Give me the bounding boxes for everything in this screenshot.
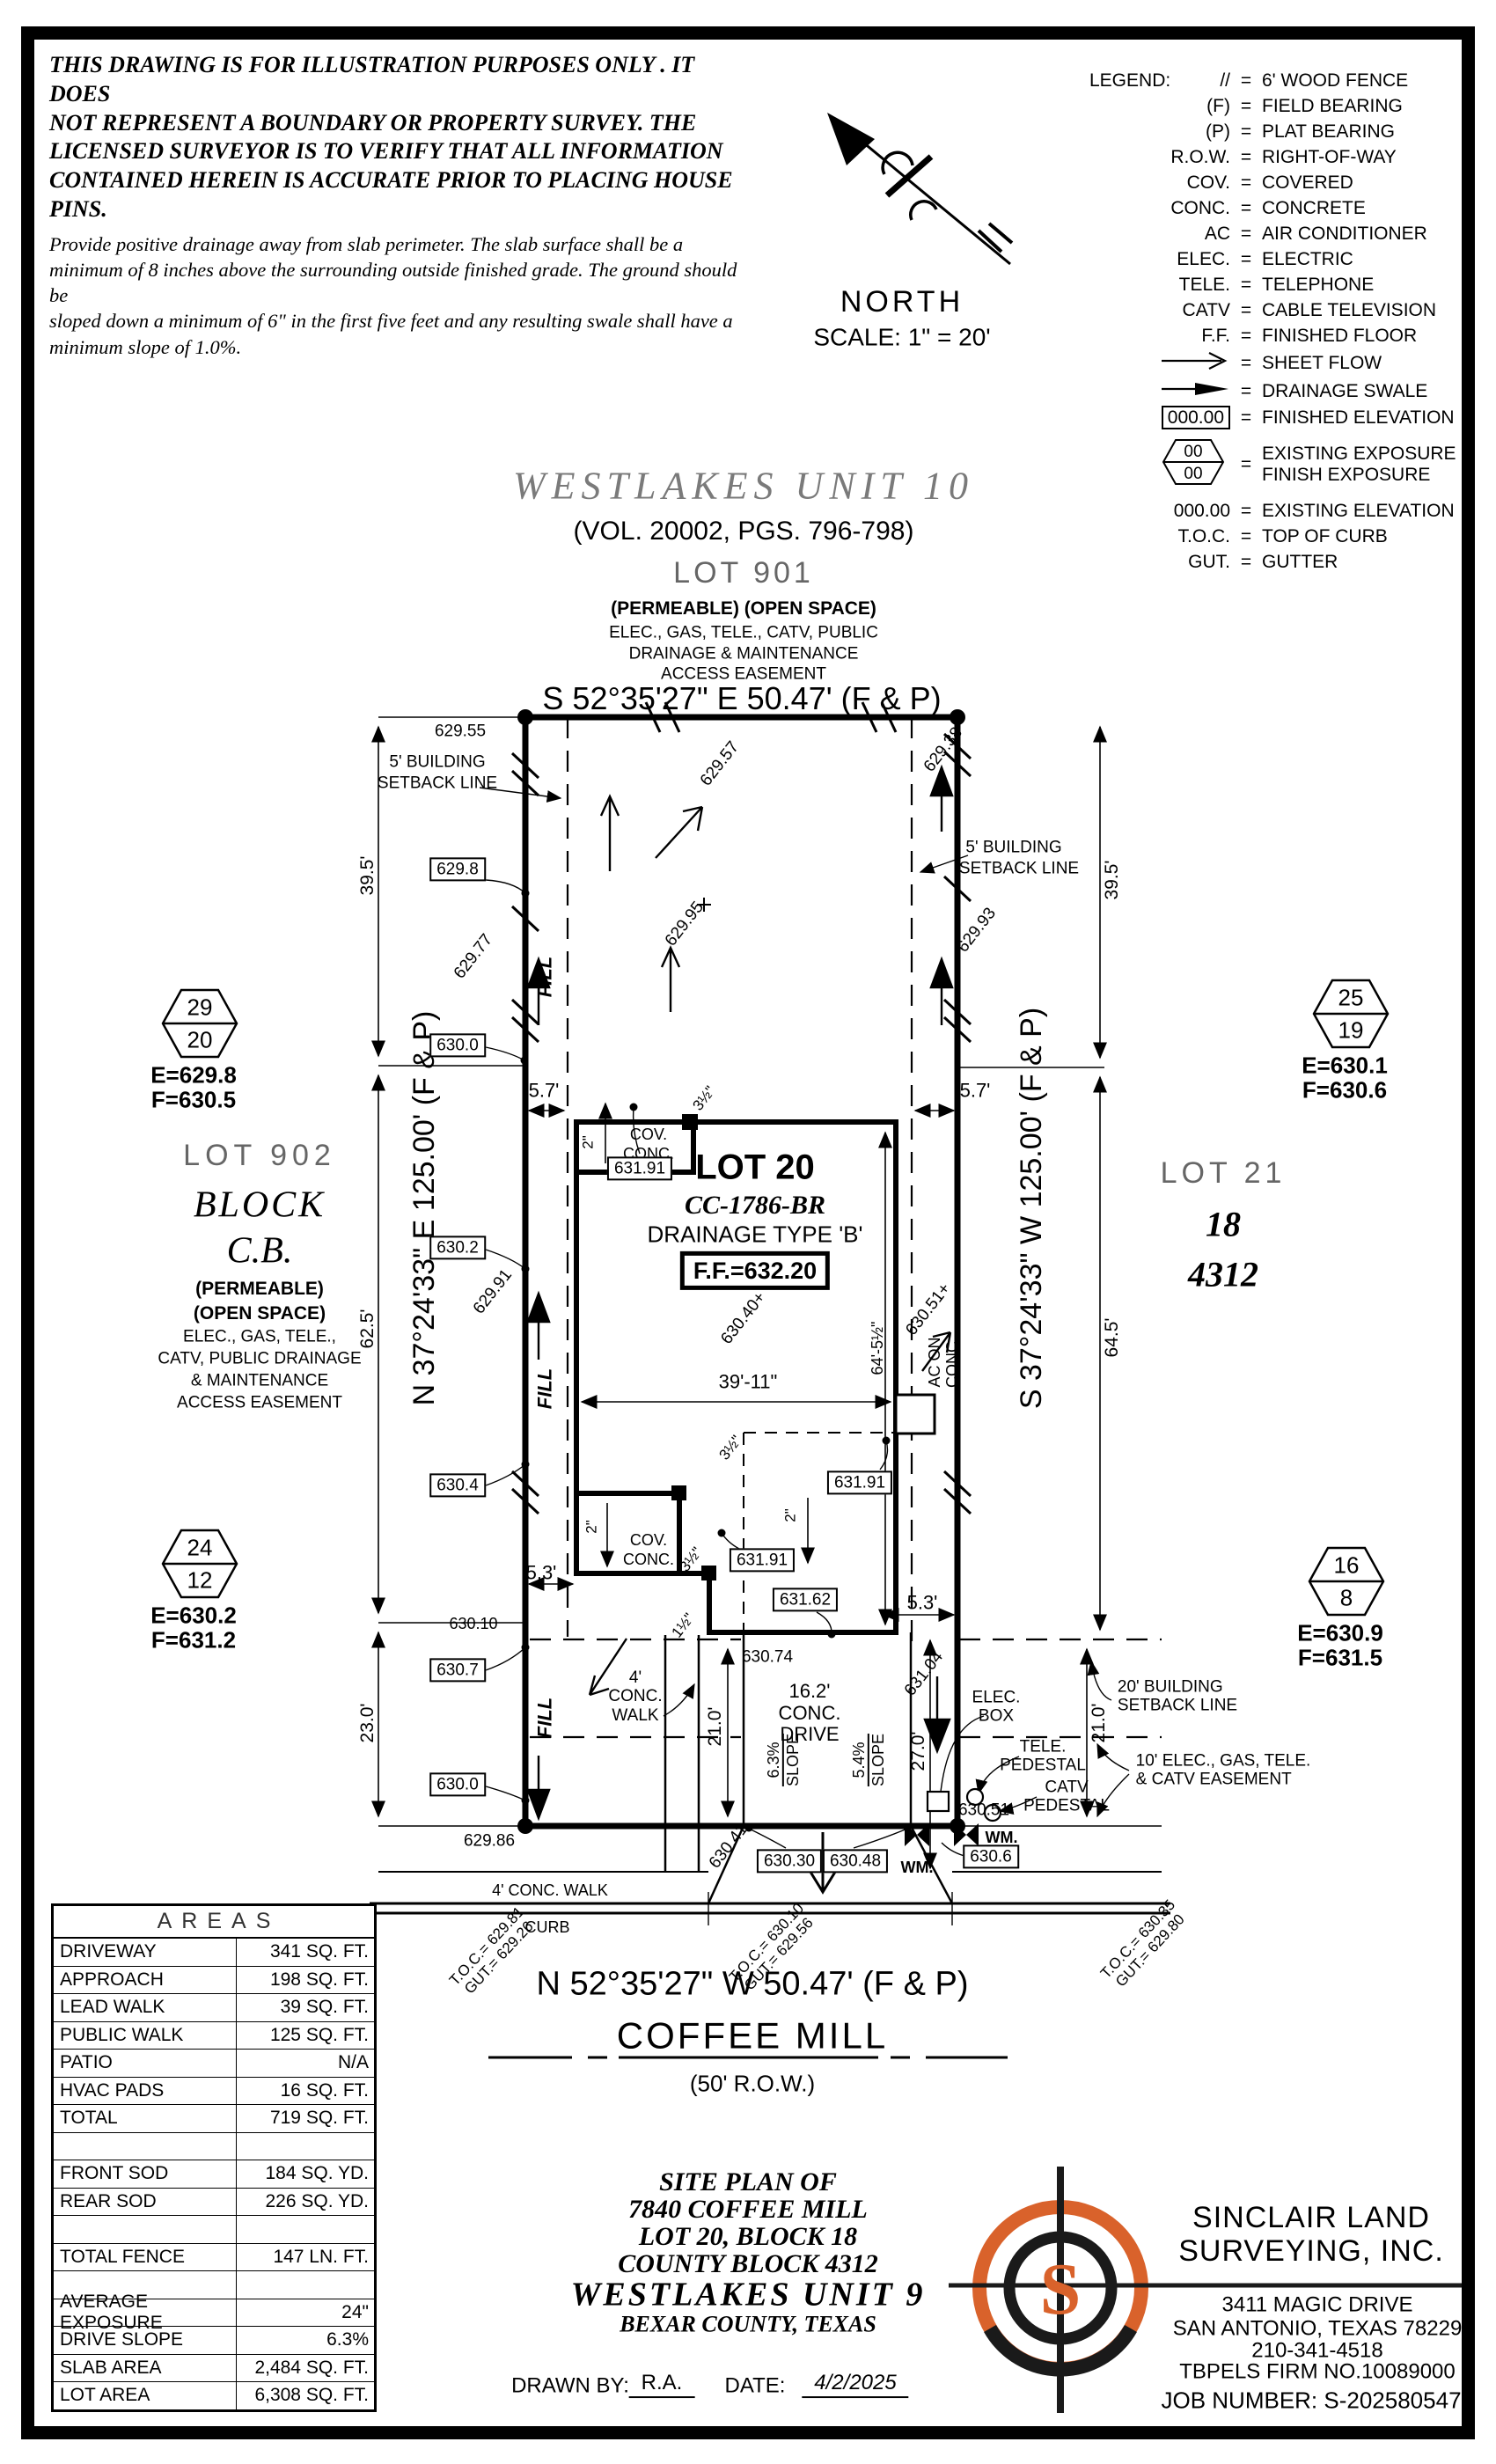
legend-desc: EXISTING ELEVATION <box>1262 501 1468 522</box>
legend-desc: COVERED <box>1262 172 1468 194</box>
spot-629-38: 629.38 <box>920 724 967 776</box>
drawn-by-value: R.A. <box>629 2372 695 2398</box>
dim-5-7-east: 5.7' <box>960 1081 991 1103</box>
disclaimer-line: LICENSED SURVEYOR IS TO VERIFY THAT ALL … <box>49 137 753 166</box>
drainage-type: DRAINAGE TYPE 'B' <box>648 1221 863 1247</box>
setback-20ft-label: 20' BUILDINGSETBACK LINE <box>1118 1678 1237 1716</box>
lot-902-open-space: (OPEN SPACE) <box>194 1303 326 1324</box>
legend-sym: T.O.C. <box>1089 526 1230 547</box>
drainage-swale-arrows <box>528 767 952 1818</box>
street-bearing: N 52°35'27" W 50.47' (F & P) <box>537 1966 969 2004</box>
finished-elev-631-91: 631.91 <box>607 1156 672 1180</box>
table-row-label: LEAD WALK <box>54 1994 237 2021</box>
legend-desc: FINISHED FLOOR <box>1262 326 1468 347</box>
finished-elev-630-6: 630.6 <box>963 1844 1019 1868</box>
table-row-label: DRIVEWAY <box>54 1939 237 1966</box>
disclaimer-note: THIS DRAWING IS FOR ILLUSTRATION PURPOSE… <box>49 51 753 360</box>
fill-label: FILL <box>535 957 557 997</box>
legend-desc: PLAT BEARING <box>1262 121 1468 143</box>
adjacent-subdivision-title: WESTLAKES UNIT 10 <box>513 464 974 507</box>
table-row-value: 198 SQ. FT. <box>237 1969 375 1991</box>
exposure-hexagons <box>163 980 1388 1615</box>
table-row-blank <box>54 2216 237 2243</box>
table-row-label: PATIO <box>54 2050 237 2077</box>
firm-logo-letter: S <box>1040 2248 1082 2331</box>
north-boundary-bearing: S 52°35'27" E 50.47' (F & P) <box>542 681 941 716</box>
firm-license: TBPELS FIRM NO.10089000 <box>1179 2361 1455 2385</box>
elec-box-label: ELEC.BOX <box>972 1689 1021 1727</box>
table-row-label: AVERAGE EXPOSURE <box>54 2299 237 2327</box>
lot-901-easement-2: DRAINAGE & MAINTENANCE <box>629 644 859 663</box>
north-arrow-graphic <box>827 113 1012 264</box>
finished-elev-631-91: 631.91 <box>827 1470 892 1494</box>
dim-21-0-drive: 21.0' <box>705 1707 726 1747</box>
drainage-note-line: minimum slope of 1.0%. <box>49 334 753 360</box>
table-row-value: 719 SQ. FT. <box>237 2108 375 2129</box>
legend-sym: ELEC. <box>1089 249 1230 270</box>
spot-631-04: 631.04 <box>901 1648 948 1700</box>
spot-629-93: 629.93 <box>954 905 1001 957</box>
finished-elev-629-8: 629.8 <box>429 857 486 881</box>
legend-sym: 000.00 <box>1089 501 1230 522</box>
lot-902-permeable: (PERMEABLE) <box>195 1279 324 1300</box>
dim-2in: 2" <box>781 1508 798 1522</box>
water-meter-label: WM. <box>901 1859 934 1876</box>
legend-desc: 6' WOOD FENCE <box>1262 70 1468 92</box>
exposure-bottom: 20 <box>187 1027 213 1052</box>
lot-902-easement-3: & MAINTENANCE <box>191 1371 328 1390</box>
legend-desc: TELEPHONE <box>1262 275 1468 296</box>
drawn-by-label: DRAWN BY: <box>511 2375 629 2399</box>
finish-exposure: F=630.5 <box>151 1087 236 1112</box>
exposure-top: 16 <box>1334 1552 1360 1578</box>
plan-number: CC-1786-BR <box>685 1191 825 1221</box>
table-row-value: 226 SQ. YD. <box>237 2191 375 2212</box>
finished-elev-630-7: 630.7 <box>429 1658 486 1682</box>
table-row-label: REAR SOD <box>54 2189 237 2216</box>
finished-elev-630-30: 630.30 <box>757 1849 822 1873</box>
exposure-top: 25 <box>1338 985 1364 1010</box>
legend-sym: (P) <box>1089 121 1230 143</box>
lot-902-easement-2: CATV, PUBLIC DRAINAGE <box>158 1349 361 1368</box>
date-label: DATE: <box>725 2375 786 2399</box>
table-row-value: 39 SQ. FT. <box>237 1997 375 2018</box>
dim-64-5-east: 64.5' <box>1102 1318 1123 1358</box>
title-address: 7840 COFFEE MILL <box>628 2195 868 2225</box>
conc-walk-label: 4'CONC.WALK <box>608 1668 662 1725</box>
lot-902-easement-1: ELEC., GAS, TELE., <box>183 1327 336 1346</box>
dim-21-0-east: 21.0' <box>1089 1704 1110 1743</box>
legend-desc: FIELD BEARING <box>1262 96 1468 117</box>
north-label: NORTH <box>840 285 964 319</box>
tele-pedestal-label: TELE.PEDESTAL <box>1000 1738 1086 1776</box>
spot-630-51-plus: 630.51+ <box>902 1280 954 1339</box>
block-label: BLOCK <box>194 1184 326 1226</box>
easement-10ft-label: 10' ELEC., GAS, TELE.& CATV EASEMENT <box>1136 1752 1311 1790</box>
firm-name-1: SINCLAIR LAND <box>1192 2201 1430 2234</box>
dim-2in: 2" <box>583 1520 599 1534</box>
firm-address-2: SAN ANTONIO, TEXAS 78229 <box>1173 2318 1463 2342</box>
finished-floor-elevation: F.F.=632.20 <box>680 1251 830 1290</box>
disclaimer-line: NOT REPRESENT A BOUNDARY OR PROPERTY SUR… <box>49 109 753 138</box>
legend-desc: GUTTER <box>1262 552 1468 573</box>
svg-text:00: 00 <box>1184 443 1202 461</box>
lot-902-easement-4: ACCESS EASEMENT <box>177 1393 342 1412</box>
scale-label: SCALE: 1" = 20' <box>813 323 990 350</box>
legend-desc: CONCRETE <box>1262 198 1468 219</box>
spot-629-57: 629.57 <box>697 738 744 790</box>
dim-27-0-drive: 27.0' <box>908 1732 929 1771</box>
curb-lines <box>370 1903 1170 1913</box>
lot-901-use: (PERMEABLE) (OPEN SPACE) <box>611 598 876 620</box>
cov-conc-porch-bottom: CONC. <box>623 1551 674 1568</box>
lot-901-label: LOT 901 <box>673 556 814 590</box>
dim-3-5in: 3½" <box>715 1432 744 1463</box>
finish-exposure: F=631.2 <box>151 1627 236 1653</box>
table-row-label: FRONT SOD <box>54 2160 237 2188</box>
ac-on-conc-label: AC ONCONC. <box>926 1337 961 1388</box>
existing-exposure: E=630.9 <box>1297 1620 1383 1646</box>
title-lot-block: LOT 20, BLOCK 18 <box>639 2222 857 2252</box>
setback-5ft-label: SETBACK LINE <box>378 774 497 792</box>
dim-39-5-east: 39.5' <box>1102 861 1123 900</box>
sheet-flow-icon <box>1089 351 1230 376</box>
block-18-label: 18 <box>1206 1206 1241 1245</box>
dim-39-11: 39'-11" <box>719 1372 778 1394</box>
table-row-label: PUBLIC WALK <box>54 2022 237 2050</box>
table-row-value: 6.3% <box>237 2329 375 2350</box>
curb-ticks <box>708 1892 952 1925</box>
legend-desc: FINISHED ELEVATION <box>1262 407 1468 429</box>
dim-3-5in: 3½" <box>676 1544 705 1574</box>
dim-2in: 2" <box>579 1135 596 1149</box>
ac-unit <box>896 1395 935 1434</box>
finished-elev-630-0: 630.0 <box>429 1033 486 1057</box>
existing-exposure: E=629.8 <box>150 1062 237 1088</box>
street-name: COFFEE MILL <box>617 2014 888 2056</box>
table-row-value: 341 SQ. FT. <box>237 1941 375 1962</box>
table-row-label: HVAC PADS <box>54 2078 237 2105</box>
table-row-value: 2,484 SQ. FT. <box>237 2358 375 2379</box>
legend-desc: DRAINAGE SWALE <box>1262 381 1468 402</box>
table-row-value: 6,308 SQ. FT. <box>237 2385 375 2406</box>
catv-pedestal-label: CATVPEDESTAL <box>1023 1778 1110 1816</box>
west-boundary-bearing: N 37°24'33" E 125.00' (F & P) <box>407 1011 441 1406</box>
legend-desc: FINISH EXPOSURE <box>1262 465 1468 486</box>
finished-elev-631-91: 631.91 <box>730 1548 795 1572</box>
dim-64ft: 64'-5½" <box>869 1322 886 1375</box>
legend-sym: AC <box>1089 224 1230 245</box>
exposure-top: 24 <box>187 1535 213 1560</box>
dim-3-5in: 3½" <box>689 1082 718 1113</box>
spot-629-55: 629.55 <box>435 722 486 740</box>
exposure-bottom: 19 <box>1338 1017 1364 1043</box>
table-row-value: 24" <box>237 2302 375 2323</box>
dim-5-7-west: 5.7' <box>529 1081 560 1103</box>
date-value: 4/2/2025 <box>802 2372 908 2398</box>
lot-20-label: LOT 20 <box>695 1148 815 1188</box>
table-row-label: TOTAL FENCE <box>54 2244 237 2271</box>
table-row-value: 16 SQ. FT. <box>237 2080 375 2101</box>
setback-5ft-label: SETBACK LINE <box>959 859 1079 877</box>
dim-39-5-west: 39.5' <box>357 856 378 896</box>
legend-sym: F.F. <box>1089 326 1230 347</box>
spot-630-41: 630.41 <box>706 1821 752 1873</box>
title-county-state: BEXAR COUNTY, TEXAS <box>620 2311 876 2336</box>
finished-elev-631-62: 631.62 <box>773 1588 838 1611</box>
dim-5-3-west: 5.3' <box>526 1563 557 1585</box>
spot-630-74: 630.74 <box>742 1647 793 1666</box>
svg-text:00: 00 <box>1184 465 1202 483</box>
table-row-label: TOTAL <box>54 2105 237 2132</box>
street-row: (50' R.O.W.) <box>690 2071 815 2096</box>
exposure-hexagon-icon: 0000 <box>1089 433 1230 496</box>
spot-629-77: 629.77 <box>451 931 497 983</box>
table-row-label: SLAB AREA <box>54 2355 237 2382</box>
finish-exposure: F=631.5 <box>1298 1645 1382 1670</box>
exposure-top: 29 <box>187 994 213 1020</box>
table-row-label: APPROACH <box>54 1967 237 1994</box>
dim-5-3-east: 5.3' <box>907 1593 938 1615</box>
elec-box-symbol <box>928 1792 949 1811</box>
legend-desc: EXISTING EXPOSURE <box>1262 444 1468 465</box>
lot-902-label: LOT 902 <box>183 1139 336 1172</box>
spot-629-86: 629.86 <box>464 1831 515 1850</box>
table-row-label: LOT AREA <box>54 2382 237 2409</box>
toc-gut-right: T.O.C.= 630.35GUT.= 629.80 <box>1097 1896 1191 1993</box>
cov-conc-porch-bottom: COV. <box>630 1531 667 1549</box>
finished-elev-630-0: 630.0 <box>429 1772 486 1796</box>
table-row-label: DRIVE SLOPE <box>54 2327 237 2354</box>
legend-sym: TELE. <box>1089 275 1230 296</box>
legend-sym: (F) <box>1089 96 1230 117</box>
legend-sym: R.O.W. <box>1089 147 1230 168</box>
table-row-value: N/A <box>237 2052 375 2073</box>
plat-volume: (VOL. 20002, PGS. 796-798) <box>574 517 914 546</box>
dim-62-5-west: 62.5' <box>357 1309 378 1349</box>
legend-sym: CONC. <box>1089 198 1230 219</box>
cov-conc-porch-top: COV. <box>630 1126 667 1143</box>
areas-table: AREAS DRIVEWAY341 SQ. FT. APPROACH198 SQ… <box>51 1903 377 2412</box>
title-subdivision: WESTLAKES UNIT 9 <box>571 2277 926 2314</box>
existing-exposure: E=630.1 <box>1302 1052 1388 1078</box>
spot-630-10: 630.10 <box>449 1615 497 1632</box>
exposure-bottom: 8 <box>1340 1585 1353 1610</box>
spot-629-91: 629.91 <box>470 1266 517 1318</box>
county-block-4312-label: 4312 <box>1188 1256 1258 1295</box>
spot-629-95: 629.95 <box>662 898 708 950</box>
fill-label: FILL <box>535 1698 557 1738</box>
dim-23-0-west: 23.0' <box>357 1704 378 1743</box>
fill-label: FILL <box>535 1368 557 1409</box>
block-cb-label: C.B. <box>227 1230 293 1272</box>
lot-901-easement-1: ELEC., GAS, TELE., CATV, PUBLIC <box>609 623 878 642</box>
table-row-blank <box>54 2133 237 2160</box>
drainage-swale-icon <box>1089 380 1230 403</box>
finished-elevation-icon: 000.00 <box>1089 407 1230 429</box>
legend-desc: TOP OF CURB <box>1262 526 1468 547</box>
east-boundary-bearing: S 37°24'33" W 125.00' (F & P) <box>1015 1008 1048 1409</box>
legend-desc: SHEET FLOW <box>1262 353 1468 374</box>
setback-5ft-label: 5' BUILDING <box>389 752 485 771</box>
drainage-note-line: Provide positive drainage away from slab… <box>49 231 753 257</box>
table-row-value: 184 SQ. YD. <box>237 2163 375 2184</box>
areas-table-title: AREAS <box>54 1906 374 1939</box>
firm-name-2: SURVEYING, INC. <box>1178 2234 1444 2268</box>
site-plan-sheet: THIS DRAWING IS FOR ILLUSTRATION PURPOSE… <box>0 0 1496 2464</box>
drive-slope-6-3: 6.3%SLOPE <box>765 1734 802 1786</box>
legend-desc: ELECTRIC <box>1262 249 1468 270</box>
existing-exposure: E=630.2 <box>150 1602 237 1628</box>
finish-exposure: F=630.6 <box>1302 1077 1387 1103</box>
legend-desc: AIR CONDITIONER <box>1262 224 1468 245</box>
drive-slope-5-4: 5.4%SLOPE <box>850 1734 887 1786</box>
job-number: JOB NUMBER: S-202580547 <box>1161 2387 1461 2413</box>
legend-desc: CABLE TELEVISION <box>1262 300 1468 321</box>
table-row-value: 147 LN. FT. <box>237 2247 375 2268</box>
title-county-block: COUNTY BLOCK 4312 <box>618 2249 878 2279</box>
exposure-bottom: 12 <box>187 1567 213 1593</box>
setback-5ft-label: 5' BUILDING <box>965 838 1061 856</box>
water-meter-label: WM. <box>986 1829 1018 1846</box>
drainage-note-line: sloped down a minimum of 6" in the first… <box>49 308 753 334</box>
title-site-plan-of: SITE PLAN OF <box>659 2167 837 2197</box>
public-walk-label: 4' CONC. WALK <box>492 1881 608 1899</box>
drainage-note-line: minimum of 8 inches above the surroundin… <box>49 257 753 309</box>
legend-sym: COV. <box>1089 172 1230 194</box>
disclaimer-line: THIS DRAWING IS FOR ILLUSTRATION PURPOSE… <box>49 51 753 109</box>
legend: LEGEND: //=6' WOOD FENCE (F)=FIELD BEARI… <box>1089 70 1468 577</box>
legend-sym: CATV <box>1089 300 1230 321</box>
disclaimer-line: CONTAINED HEREIN IS ACCURATE PRIOR TO PL… <box>49 166 753 224</box>
finished-elev-630-4: 630.4 <box>429 1473 486 1497</box>
toc-gut-left: T.O.C.= 629.81GUT.= 629.26 <box>446 1903 539 2000</box>
leader-dots <box>521 890 912 1832</box>
dim-1-5in: 1½" <box>668 1610 697 1640</box>
lot-21-label: LOT 21 <box>1161 1156 1287 1190</box>
spot-630-40: 630.40+ <box>717 1288 769 1348</box>
legend-sym: GUT. <box>1089 552 1230 573</box>
sheet-flow-arrows <box>590 796 950 1892</box>
table-row-value: 125 SQ. FT. <box>237 2025 375 2046</box>
fence-symbol: // <box>1089 70 1230 92</box>
spot-630-51: 630.51 <box>958 1800 1009 1819</box>
firm-address-1: 3411 MAGIC DRIVE <box>1222 2294 1413 2318</box>
finished-elev-630-2: 630.2 <box>429 1236 486 1259</box>
legend-desc: RIGHT-OF-WAY <box>1262 147 1468 168</box>
finished-elev-630-48: 630.48 <box>823 1849 888 1873</box>
water-meter-symbols <box>905 1823 979 1846</box>
